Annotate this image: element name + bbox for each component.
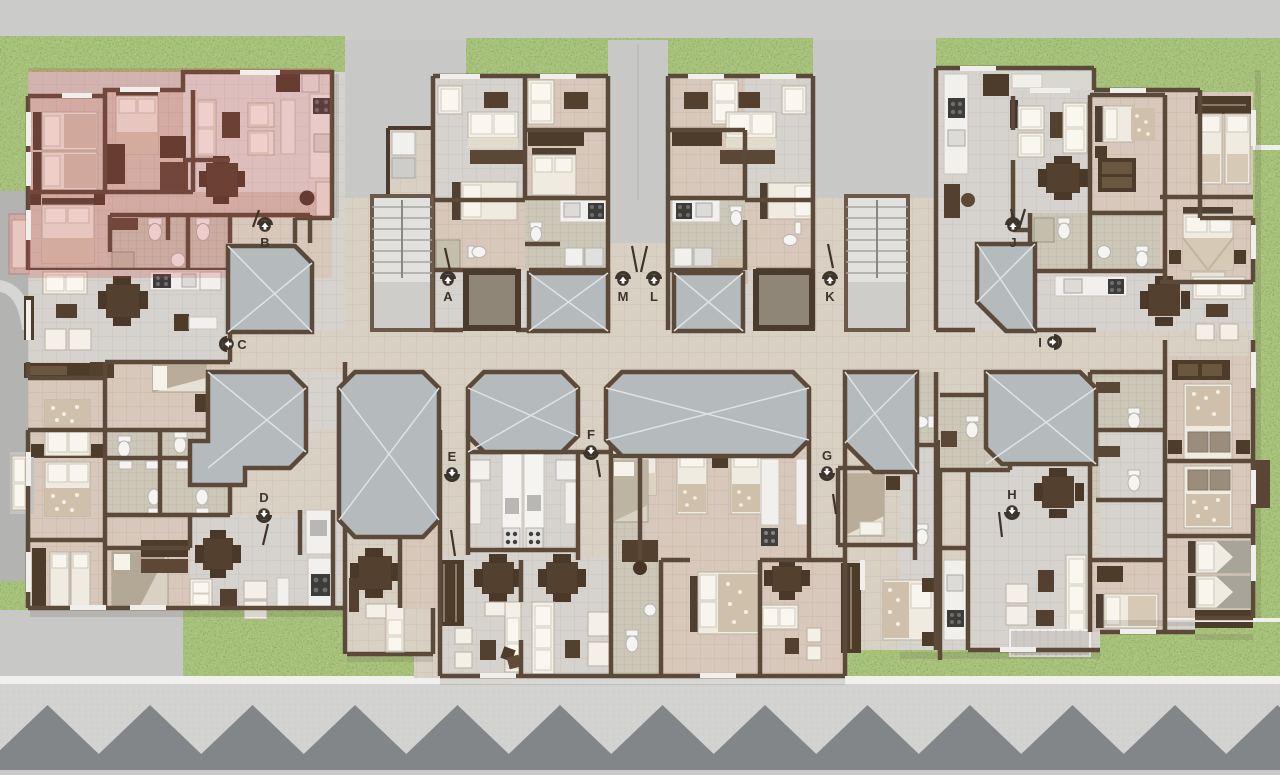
svg-text:H: H (1007, 487, 1016, 502)
svg-text:L: L (650, 289, 658, 304)
svg-text:B: B (260, 235, 269, 250)
svg-text:E: E (448, 449, 457, 464)
svg-text:A: A (443, 289, 453, 304)
svg-text:D: D (259, 490, 268, 505)
svg-text:M: M (618, 289, 629, 304)
svg-text:C: C (237, 337, 247, 352)
svg-text:I: I (1038, 335, 1042, 350)
svg-text:K: K (825, 289, 835, 304)
svg-text:G: G (822, 448, 832, 463)
svg-text:J: J (1009, 235, 1016, 250)
svg-text:F: F (587, 427, 595, 442)
